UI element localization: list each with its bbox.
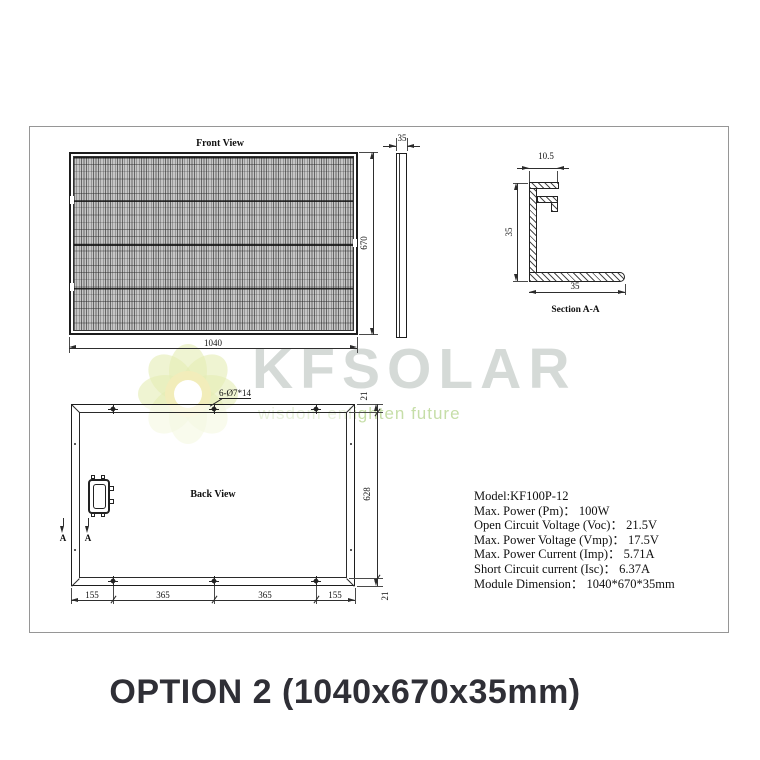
product-drawing-page: KFSOLAR wisdom enlighten future Front Vi… <box>0 0 760 760</box>
extension-line <box>359 334 378 335</box>
spec-isc: Short Circuit current (Isc)： 6.37A <box>474 562 675 577</box>
spec-dimension: Module Dimension： 1040*670*35mm <box>474 577 675 592</box>
section-cut-letter: A <box>57 533 69 543</box>
dimension-line <box>373 152 374 335</box>
back-right-dim-top: 21 <box>359 388 369 404</box>
extension-line <box>113 586 114 604</box>
junction-box-tab <box>109 486 114 491</box>
dim-arrow <box>522 166 529 170</box>
extension-line <box>357 404 383 405</box>
dimension-line <box>69 348 357 349</box>
section-profile-wall <box>529 182 537 282</box>
frame-notch <box>353 239 357 247</box>
back-view-label: Back View <box>173 489 253 500</box>
junction-box-nub <box>91 513 95 517</box>
mounting-hole-marker <box>108 404 118 414</box>
dim-arrow <box>407 144 414 148</box>
section-cut-arrow <box>60 526 64 533</box>
section-profile-top-flange <box>529 182 559 189</box>
mounting-hole-marker <box>311 404 321 414</box>
frame-dot <box>74 549 76 551</box>
back-bottom-dim-1: 155 <box>80 590 104 600</box>
extension-line <box>557 171 558 182</box>
dim-arrow <box>370 328 374 335</box>
dim-arrow <box>529 290 536 294</box>
extension-line <box>357 586 383 587</box>
holes-note: 6-Ø7*14 <box>219 388 251 399</box>
section-lip-dim: 10.5 <box>533 151 559 161</box>
frame-dot <box>350 549 352 551</box>
junction-box-nub <box>101 475 105 479</box>
frame-notch <box>70 196 74 204</box>
dim-arrow <box>618 290 625 294</box>
back-bottom-dim-4: 155 <box>323 590 347 600</box>
section-cut-line <box>63 518 64 526</box>
dim-arrow <box>514 183 518 190</box>
back-right-dim-mid: 628 <box>362 482 372 506</box>
extension-line <box>316 586 317 604</box>
back-right-dim-bottom: 21 <box>380 588 390 604</box>
junction-box-nub <box>101 513 105 517</box>
frame-dot <box>74 443 76 445</box>
dim-arrow <box>71 598 78 602</box>
extension-line <box>359 152 378 153</box>
spec-voc: Open Circuit Voltage (Voc)： 21.5V <box>474 518 675 533</box>
dimension-line <box>517 183 518 281</box>
extension-line <box>625 284 626 295</box>
side-view-inner-line <box>399 154 400 337</box>
mounting-hole-marker <box>108 576 118 586</box>
side-view-profile <box>396 153 407 338</box>
extension-line <box>214 586 215 604</box>
spec-model: Model:KF100P-12 <box>474 489 675 504</box>
dim-arrow <box>348 598 355 602</box>
extension-line <box>357 337 358 353</box>
spec-max-power: Max. Power (Pm)： 100W <box>474 504 675 519</box>
section-view-label: Section A-A <box>528 305 623 315</box>
dim-arrow <box>389 144 396 148</box>
page-title: OPTION 2 (1040x670x35mm) <box>0 673 690 712</box>
front-view-cell-grid <box>73 156 354 331</box>
side-thickness-dim: 35 <box>392 133 412 143</box>
extension-line <box>529 171 530 182</box>
dim-arrow <box>350 345 357 349</box>
section-height-dim: 35 <box>504 222 514 242</box>
spec-block: Model:KF100P-12 Max. Power (Pm)： 100W Op… <box>474 489 675 591</box>
extension-line <box>355 588 356 604</box>
dim-arrow <box>69 345 76 349</box>
back-bottom-dim-3: 365 <box>251 590 279 600</box>
dim-arrow <box>514 274 518 281</box>
front-width-dim: 1040 <box>193 338 233 348</box>
frame-dot <box>350 443 352 445</box>
mounting-hole-marker <box>209 576 219 586</box>
dim-arrow <box>557 166 564 170</box>
extension-line <box>71 588 72 604</box>
mounting-hole-marker <box>311 576 321 586</box>
junction-box-nub <box>91 475 95 479</box>
front-height-dim: 670 <box>359 231 369 255</box>
front-view-label: Front View <box>170 138 270 149</box>
section-cut-line <box>88 518 89 526</box>
spec-vmp: Max. Power Voltage (Vmp)： 17.5V <box>474 533 675 548</box>
junction-box-inner <box>93 484 106 509</box>
section-cut-arrow <box>85 526 89 533</box>
dimension-line <box>529 292 625 293</box>
frame-notch <box>70 283 74 291</box>
section-cut-letter: A <box>82 533 94 543</box>
dimension-line <box>377 404 378 586</box>
dimension-line <box>529 168 557 169</box>
extension-line <box>513 281 528 282</box>
section-profile-hook-lip <box>551 202 558 212</box>
dim-arrow <box>370 152 374 159</box>
junction-box-tab <box>109 499 114 504</box>
back-bottom-dim-2: 365 <box>149 590 177 600</box>
section-base-dim: 35 <box>565 281 585 291</box>
spec-imp: Max. Power Current (Imp)： 5.71A <box>474 547 675 562</box>
